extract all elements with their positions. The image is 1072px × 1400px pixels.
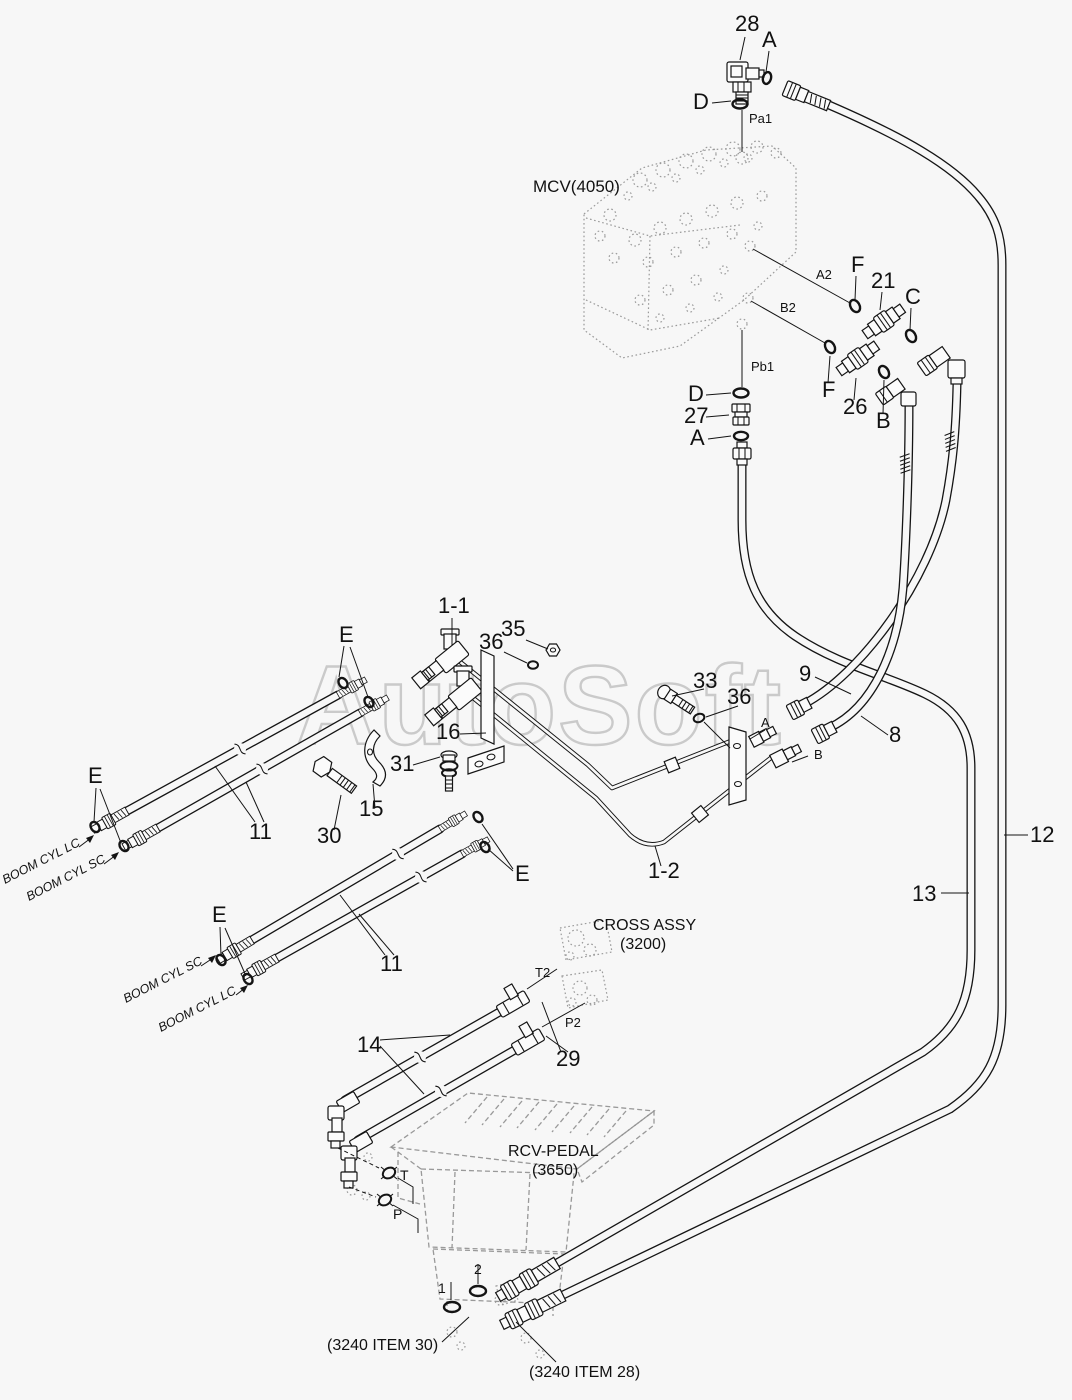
part-26-label: 26 [843, 394, 867, 419]
part-13-label: 13 [912, 881, 936, 906]
elbow-hose-9-top [917, 346, 965, 384]
oring-e2-label: E [88, 763, 103, 788]
port-a2-label: A2 [816, 267, 832, 282]
part-12-label: 12 [1030, 822, 1054, 847]
oring-2 [470, 1286, 486, 1296]
oring-e4a [472, 810, 485, 824]
part-28-label: 28 [735, 11, 759, 36]
part-33-label: 33 [693, 668, 717, 693]
cross-assy-number-label: (3200) [620, 936, 666, 953]
port-pb1-ghost [737, 319, 747, 329]
cross-assy-name-label: CROSS ASSY [593, 917, 696, 934]
diagram-page: AutoSoft [0, 0, 1072, 1400]
oring-b-part [877, 364, 891, 380]
part-21-label: 21 [871, 268, 895, 293]
port-b-bracket-label: B [814, 747, 823, 762]
boom-cyl-lc-2-label: BOOM CYL LC [156, 983, 239, 1035]
part-30-label: 30 [317, 823, 341, 848]
num-1-label: 1 [438, 1280, 446, 1296]
oring-b-label: B [876, 408, 891, 433]
hose-11d-right-fitting [460, 835, 491, 858]
part-15-label: 15 [359, 796, 383, 821]
port-t-label: T [400, 1167, 409, 1183]
oring-a-top-label: A [762, 27, 777, 52]
rcv-pedal-name-label: RCV-PEDAL [508, 1143, 599, 1160]
port-a-bracket-label: A [761, 715, 770, 730]
part-16-label: 16 [436, 719, 460, 744]
star-oring-p [377, 1192, 393, 1207]
oring-a2-part [734, 432, 748, 440]
bolt-31 [441, 751, 458, 791]
part-8-label: 8 [889, 722, 901, 747]
hose-13-top-fitting [733, 442, 751, 465]
nipple-fitting-27 [732, 404, 750, 425]
hose-11d-left-fitting [240, 952, 280, 982]
hose-11c-right-fitting [437, 809, 468, 833]
star-oring-t [381, 1165, 397, 1180]
mcv-assy-label: MCV(4050) [533, 177, 620, 196]
part-36b-label: 36 [727, 684, 751, 709]
oring-f2-part [823, 339, 837, 355]
adapter-fitting-21 [860, 301, 908, 342]
part-36a-label: 36 [479, 629, 503, 654]
port-p2-label: P2 [565, 1015, 581, 1030]
oring-c-part [904, 328, 918, 344]
oring-f1-part [848, 298, 862, 314]
asm-1-2-label: 1-2 [648, 858, 680, 883]
port-pb1-label: Pb1 [751, 359, 774, 374]
part-29-label: 29 [556, 1046, 580, 1071]
port-pa1-label: Pa1 [749, 111, 772, 126]
boom-cyl-sc-2-label: BOOM CYL SC [121, 953, 205, 1005]
part-11a-label: 11 [249, 819, 272, 844]
oring-d2-part [734, 389, 749, 398]
elbow-fitting-28 [727, 62, 764, 104]
bracket-a-b [729, 727, 746, 805]
ref-item-30-label: (3240 ITEM 30) [327, 1337, 438, 1354]
port-b2-label: B2 [780, 300, 796, 315]
oring-f2-label: F [822, 377, 835, 402]
parts-diagram-canvas: AutoSoft [0, 0, 1072, 1400]
part-14-label: 14 [357, 1032, 381, 1057]
oring-d-top-label: D [693, 89, 709, 114]
adapter-fitting-26 [834, 338, 882, 379]
oring-e3-label: E [212, 902, 227, 927]
oring-a2-label: A [690, 425, 705, 450]
oring-c-label: C [905, 284, 921, 309]
rcv-pedal-number-label: (3650) [532, 1162, 578, 1179]
oring-e1-label: E [339, 622, 354, 647]
oring-e4-label: E [515, 861, 530, 886]
part-11b-label: 11 [380, 951, 403, 976]
ref-item-28-label: (3240 ITEM 28) [529, 1364, 640, 1381]
elbow-fitting-14b [341, 1131, 373, 1188]
hose-11b-left-fitting [121, 822, 161, 852]
oring-1 [444, 1302, 460, 1312]
oring-f1-label: F [851, 252, 864, 277]
part-31-label: 31 [390, 751, 414, 776]
elbow-hose-8-top [875, 378, 916, 406]
part-35-label: 35 [501, 616, 525, 641]
port-t2-label: T2 [535, 965, 550, 980]
hose-12-start-fitting [782, 81, 832, 113]
asm-1-1-label: 1-1 [438, 593, 470, 618]
cap-nut-35 [546, 644, 560, 656]
port-p-label: P [393, 1206, 402, 1222]
num-2-label: 2 [474, 1261, 482, 1277]
mcv-valve-ghost [584, 141, 796, 358]
part-9-label: 9 [799, 661, 811, 686]
